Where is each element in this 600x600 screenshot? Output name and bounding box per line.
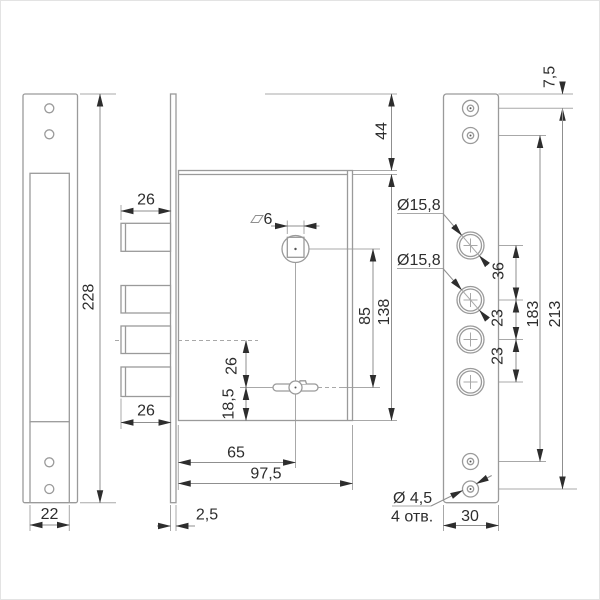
dim-screw-hole-dia-label: Ø 4,5 <box>393 490 432 507</box>
square-section-symbol <box>251 216 263 223</box>
dim-spindle-to-key-label: 85 <box>357 307 374 325</box>
dim-strike-width-label: 22 <box>41 506 59 523</box>
keyhole-shape <box>273 381 318 394</box>
dim-plate-width-label: 30 <box>461 508 479 525</box>
dim-bolt-width-bottom-label: 26 <box>137 403 155 420</box>
dim-screw-pitch-inner-label: 183 <box>525 301 542 328</box>
lock-faceplate-strip <box>171 94 177 503</box>
strike-plate-view <box>23 94 78 503</box>
deadbolt-1 <box>121 223 171 251</box>
dim-faceplate-thickness-label: 2,5 <box>196 507 218 524</box>
deadbolt-4 <box>121 367 171 397</box>
deadbolt-3 <box>121 326 171 354</box>
dim-square-spindle-label: 6 <box>264 211 273 228</box>
dim-cylinder-dia-upper-label: Ø15,8 <box>397 197 441 214</box>
lock-dimensional-drawing: 228 22 26 26 26 18,5 6 65 97,5 2,5 44 85… <box>0 0 600 600</box>
dim-key-to-bottom-label: 18,5 <box>221 388 238 419</box>
lock-body-view <box>121 94 353 503</box>
spindle-center-dot <box>294 248 296 250</box>
dim-cylinder-dia-lower-label: Ø15,8 <box>397 252 441 269</box>
dim-top-to-screw-label: 7,5 <box>542 66 559 88</box>
dim-screw-hole-count-label: 4 отв. <box>391 509 433 526</box>
dim-edge-to-key-label: 65 <box>227 445 245 462</box>
dim-body-width-label: 97,5 <box>250 466 281 483</box>
dim-bolt-to-key-label: 26 <box>224 357 241 375</box>
outer-plate-view <box>444 94 499 503</box>
dim-bolt-width-top-label: 26 <box>137 192 155 209</box>
lock-body-outline <box>179 171 353 421</box>
dim-hole-pitch-3-label: 23 <box>490 347 507 365</box>
dim-screw-pitch-outer-label: 213 <box>547 301 564 328</box>
deadbolt-2 <box>121 286 171 314</box>
deadbolts <box>121 223 171 396</box>
technical-drawing-canvas: 228 22 26 26 26 18,5 6 65 97,5 2,5 44 85… <box>0 0 600 600</box>
dim-offset-top-label: 44 <box>374 122 391 140</box>
dim-hole-pitch-1-label: 36 <box>491 262 508 280</box>
dim-hole-pitch-2-label: 23 <box>490 309 507 327</box>
dim-strike-height-label: 228 <box>81 284 98 311</box>
dim-body-height-label: 138 <box>376 299 393 326</box>
